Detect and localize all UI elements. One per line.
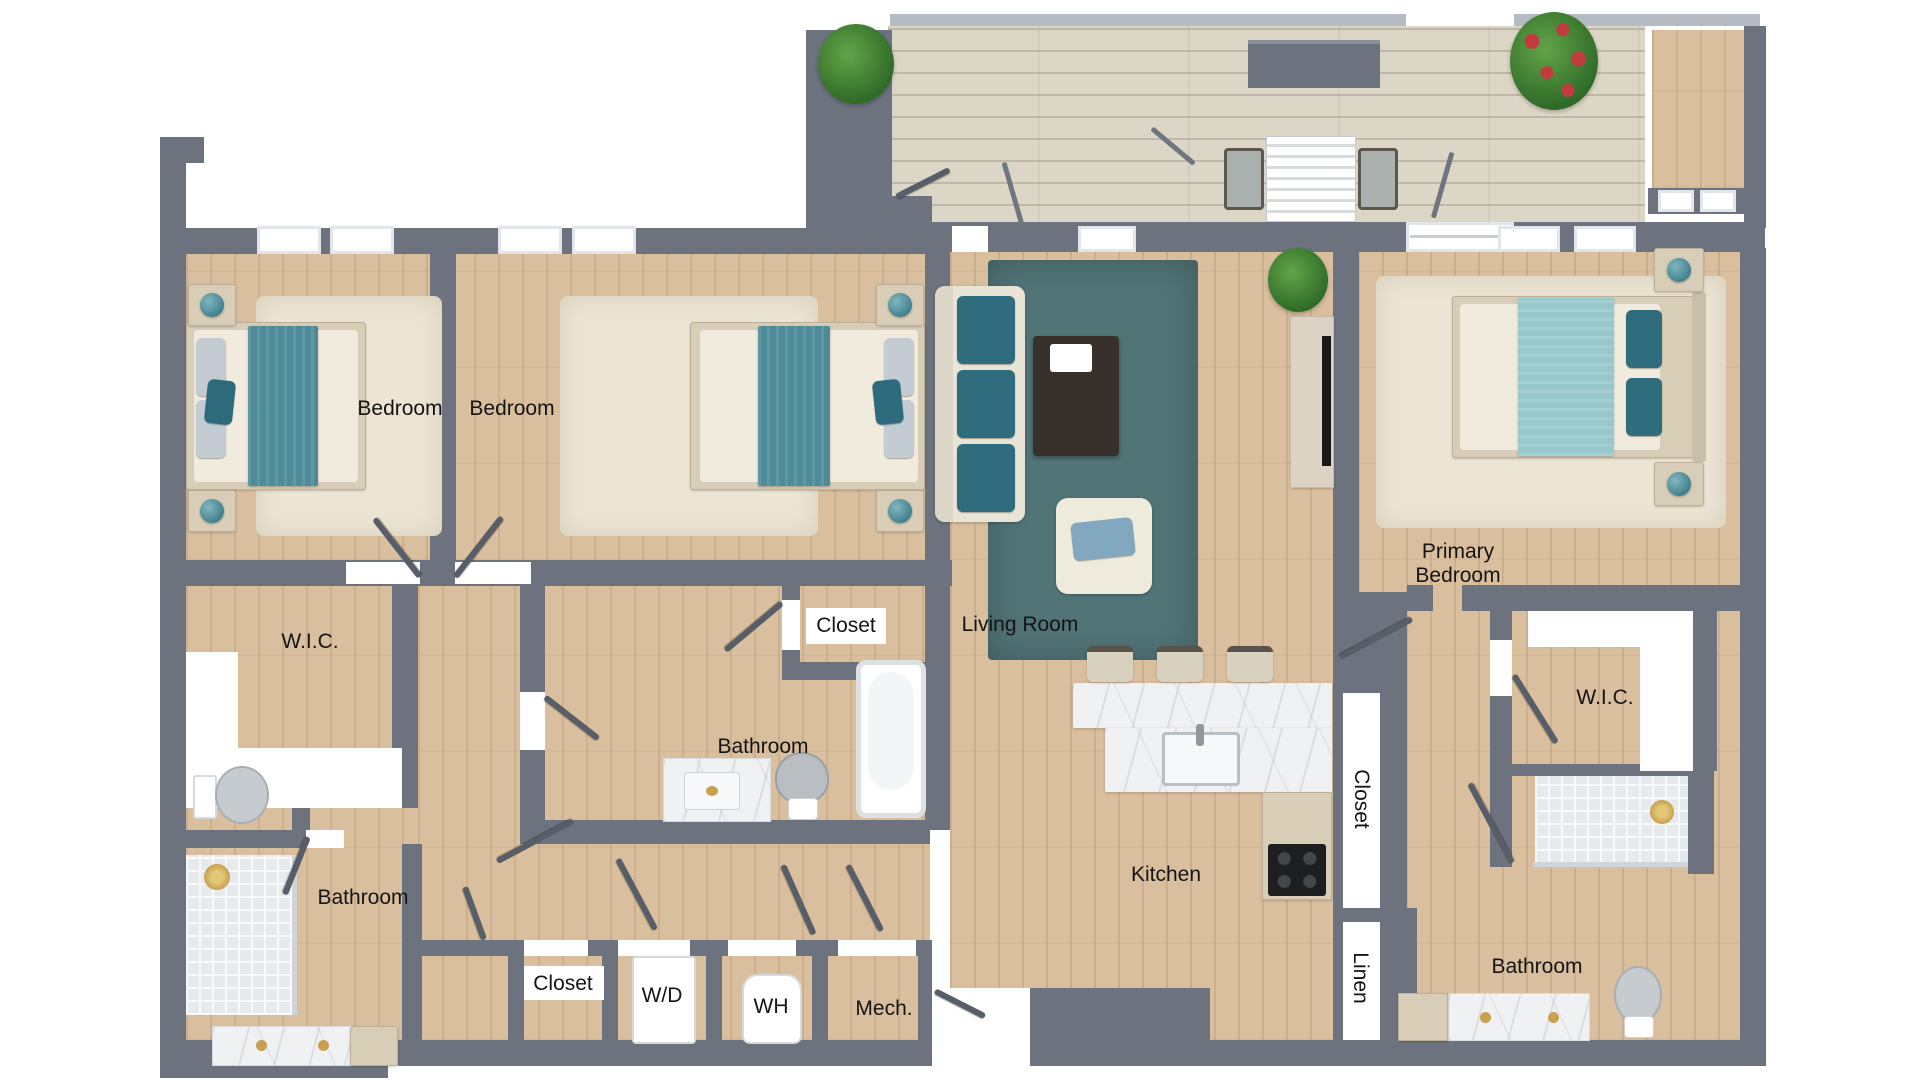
window bbox=[1078, 226, 1136, 252]
room-label-closet-middle: Closet bbox=[816, 614, 876, 638]
accent-pillow bbox=[204, 379, 236, 426]
lamp bbox=[888, 293, 912, 317]
accent-pillow bbox=[872, 379, 904, 426]
shower-head bbox=[1650, 800, 1674, 824]
room-label-water-heater: WH bbox=[754, 995, 789, 1019]
sofa-cushion bbox=[957, 370, 1015, 438]
window bbox=[257, 226, 321, 254]
wall bbox=[1333, 592, 1407, 618]
bar-stool bbox=[1227, 646, 1273, 682]
wall bbox=[1693, 611, 1717, 771]
wall bbox=[1030, 988, 1210, 1066]
wall bbox=[1688, 764, 1714, 874]
floor-right-wing bbox=[1652, 30, 1744, 188]
shower bbox=[186, 855, 296, 1015]
plant-icon bbox=[1268, 248, 1328, 312]
wall bbox=[1490, 585, 1743, 611]
wall bbox=[1744, 26, 1766, 228]
room-label-bedroom-2: Bedroom bbox=[469, 397, 554, 421]
door-opening bbox=[306, 830, 344, 848]
balcony-railing bbox=[1648, 14, 1760, 26]
wall bbox=[160, 137, 204, 163]
wall bbox=[1740, 248, 1766, 1064]
cooktop bbox=[1268, 844, 1326, 896]
faucet bbox=[1548, 1012, 1559, 1023]
wall bbox=[706, 944, 722, 1056]
entry-opening bbox=[932, 1040, 1030, 1066]
window bbox=[498, 226, 562, 254]
window bbox=[572, 226, 636, 254]
bathtub-basin bbox=[868, 672, 914, 790]
room-label-mechanical: Mech. bbox=[855, 997, 912, 1021]
room-label-bathroom-right: Bathroom bbox=[1491, 955, 1582, 979]
shower-glass bbox=[1533, 862, 1688, 867]
planter-box bbox=[1248, 40, 1380, 88]
room-label-closet-bottom-left: Closet bbox=[533, 972, 593, 996]
faucet bbox=[706, 786, 718, 796]
toilet-base bbox=[788, 798, 818, 820]
kitchen-faucet bbox=[1196, 724, 1204, 746]
wall bbox=[930, 222, 1765, 252]
wall bbox=[1407, 585, 1433, 611]
plant-icon bbox=[818, 24, 894, 104]
bed-blanket bbox=[1518, 298, 1614, 456]
door-opening bbox=[952, 226, 988, 252]
room-label-living-room: Living Room bbox=[962, 613, 1079, 637]
wall bbox=[186, 560, 952, 586]
headboard bbox=[1692, 292, 1706, 462]
pillow bbox=[1626, 310, 1662, 368]
lamp bbox=[888, 499, 912, 523]
bar-stool bbox=[1157, 646, 1203, 682]
door-opening bbox=[838, 940, 916, 956]
railing-opening bbox=[1406, 14, 1514, 26]
wall bbox=[1333, 252, 1359, 592]
lamp bbox=[1667, 258, 1691, 282]
toilet-base bbox=[1624, 1016, 1654, 1038]
outdoor-chair bbox=[1224, 148, 1264, 210]
sofa-back bbox=[935, 286, 953, 522]
lamp bbox=[200, 293, 224, 317]
room-label-primary-bedroom: Primary Bedroom bbox=[1388, 540, 1528, 588]
sliding-door-track bbox=[1410, 235, 1510, 238]
room-label-wic-right: W.I.C. bbox=[1576, 686, 1633, 710]
room-label-bathroom-middle: Bathroom bbox=[717, 735, 808, 759]
wall bbox=[918, 956, 932, 1066]
closet-shelving bbox=[1640, 647, 1693, 771]
bed-blanket bbox=[758, 326, 830, 486]
room-label-bathroom-left: Bathroom bbox=[317, 886, 408, 910]
wall bbox=[602, 944, 618, 1056]
tv bbox=[1322, 336, 1331, 466]
faucet bbox=[318, 1040, 329, 1051]
wall bbox=[1462, 585, 1490, 611]
toilet bbox=[215, 766, 269, 824]
toilet bbox=[775, 752, 829, 804]
vanity bbox=[1448, 993, 1590, 1041]
bed-blanket bbox=[248, 326, 318, 486]
wall bbox=[1333, 618, 1343, 1040]
window bbox=[330, 226, 394, 254]
armchair-pillow bbox=[1070, 517, 1136, 561]
pillow bbox=[1626, 378, 1662, 436]
wall bbox=[186, 830, 306, 848]
door-opening bbox=[520, 692, 545, 750]
wall bbox=[160, 137, 186, 1077]
shower-head bbox=[204, 864, 230, 890]
wall bbox=[545, 820, 930, 844]
wall bbox=[812, 944, 828, 1056]
door-opening bbox=[728, 940, 796, 956]
vanity-cabinet bbox=[350, 1026, 398, 1066]
window bbox=[1498, 226, 1560, 252]
vanity-cabinet bbox=[1398, 993, 1448, 1041]
bar-stool bbox=[1087, 646, 1133, 682]
lamp bbox=[1667, 472, 1691, 496]
door-opening bbox=[524, 940, 588, 956]
tray bbox=[1050, 344, 1092, 372]
room-label-wic-left: W.I.C. bbox=[281, 630, 338, 654]
door-opening bbox=[782, 600, 800, 650]
sofa-cushion bbox=[957, 444, 1015, 512]
closet-shelving bbox=[1528, 611, 1693, 647]
toilet-tank bbox=[193, 775, 217, 819]
window bbox=[1700, 190, 1736, 212]
wall bbox=[508, 940, 524, 1056]
room-label-kitchen: Kitchen bbox=[1131, 863, 1201, 887]
faucet bbox=[1480, 1012, 1491, 1023]
room-label-closet-primary-hall: Closet bbox=[1349, 769, 1373, 829]
faucet bbox=[256, 1040, 267, 1051]
window bbox=[1658, 190, 1694, 212]
outdoor-table bbox=[1266, 136, 1356, 222]
kitchen-island bbox=[1073, 683, 1332, 728]
outdoor-chair bbox=[1358, 148, 1398, 210]
room-label-linen: Linen bbox=[1348, 952, 1372, 1003]
lamp bbox=[200, 499, 224, 523]
door-opening bbox=[1490, 640, 1512, 696]
sofa-cushion bbox=[957, 296, 1015, 364]
room-label-bedroom-1: Bedroom bbox=[357, 397, 442, 421]
balcony-wall bbox=[806, 196, 932, 252]
window bbox=[1574, 226, 1636, 252]
room-label-washer-dryer: W/D bbox=[642, 984, 683, 1008]
floor-plan: Bedroom Bedroom W.I.C. Closet Living Roo… bbox=[0, 0, 1920, 1080]
flowering-plant-icon bbox=[1510, 12, 1598, 110]
door-opening bbox=[618, 940, 690, 956]
wall bbox=[1343, 908, 1380, 922]
